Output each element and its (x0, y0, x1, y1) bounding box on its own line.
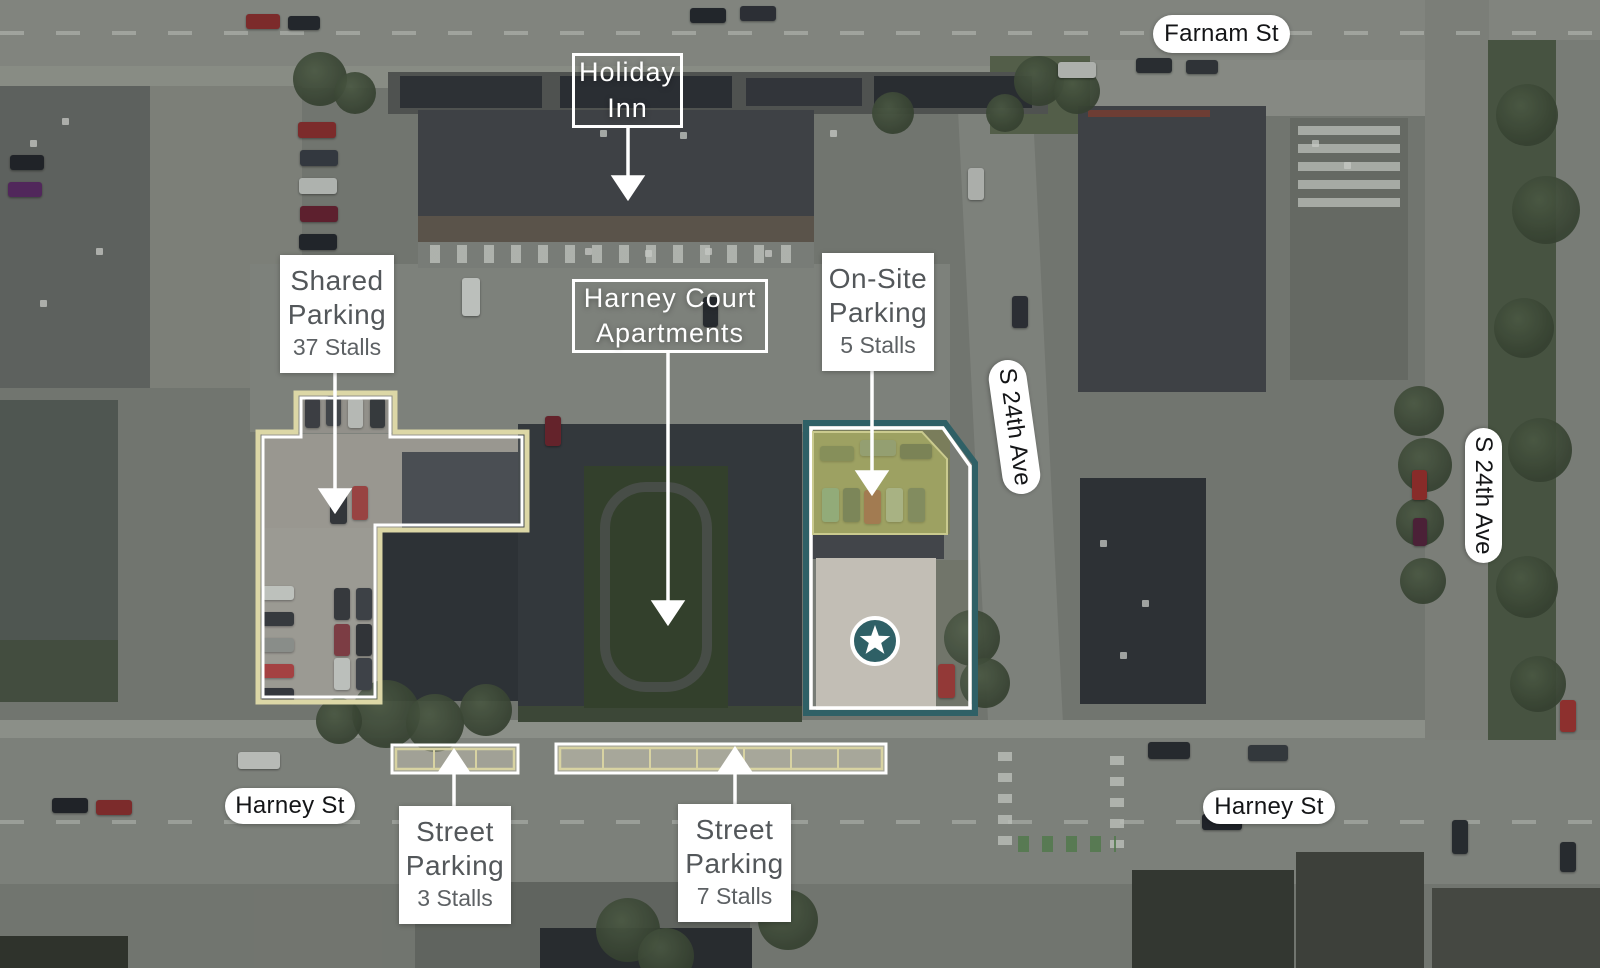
callout-shared-parking: Shared Parking 37 Stalls (280, 255, 394, 373)
callout-title: Street (680, 813, 789, 847)
callout-title: Shared (282, 264, 392, 298)
callout-title: Parking (680, 847, 789, 881)
callout-title: Parking (401, 849, 509, 883)
street-label-harney-west: Harney St (225, 788, 355, 824)
callout-title: Parking (282, 298, 392, 332)
callout-title: Parking (824, 296, 932, 330)
street-label-text: Harney St (235, 792, 344, 820)
street-label-text: S 24th Ave (1470, 436, 1498, 555)
stall-count: 5 Stalls (824, 331, 932, 360)
callout-street-parking-east: Street Parking 7 Stalls (678, 804, 791, 922)
callout-harney-court: Harney Court Apartments (572, 279, 768, 353)
callout-street-parking-west: Street Parking 3 Stalls (399, 806, 511, 924)
aerial-site-map: Farnam St Harney St Harney St S 24th Ave… (0, 0, 1600, 968)
callout-title: On-Site (824, 262, 932, 296)
callout-title: Apartments (575, 316, 765, 351)
street-label-s24th-center: S 24th Ave (986, 358, 1042, 497)
callout-title: Street (401, 815, 509, 849)
street-label-s24th-right: S 24th Ave (1465, 428, 1502, 563)
callout-title: Holiday (575, 55, 680, 90)
callout-holiday-inn: Holiday Inn (572, 53, 683, 128)
stall-count: 37 Stalls (282, 333, 392, 362)
street-label-farnam: Farnam St (1153, 15, 1290, 53)
stall-count: 7 Stalls (680, 882, 789, 911)
callout-title: Harney Court (575, 281, 765, 316)
street-label-text: Harney St (1214, 793, 1323, 821)
street-label-text: S 24th Ave (992, 366, 1036, 487)
stall-count: 3 Stalls (401, 884, 509, 913)
street-label-harney-east: Harney St (1203, 790, 1335, 824)
callout-onsite-parking: On-Site Parking 5 Stalls (822, 253, 934, 371)
street-label-text: Farnam St (1164, 20, 1279, 48)
callout-title: Inn (575, 91, 680, 126)
